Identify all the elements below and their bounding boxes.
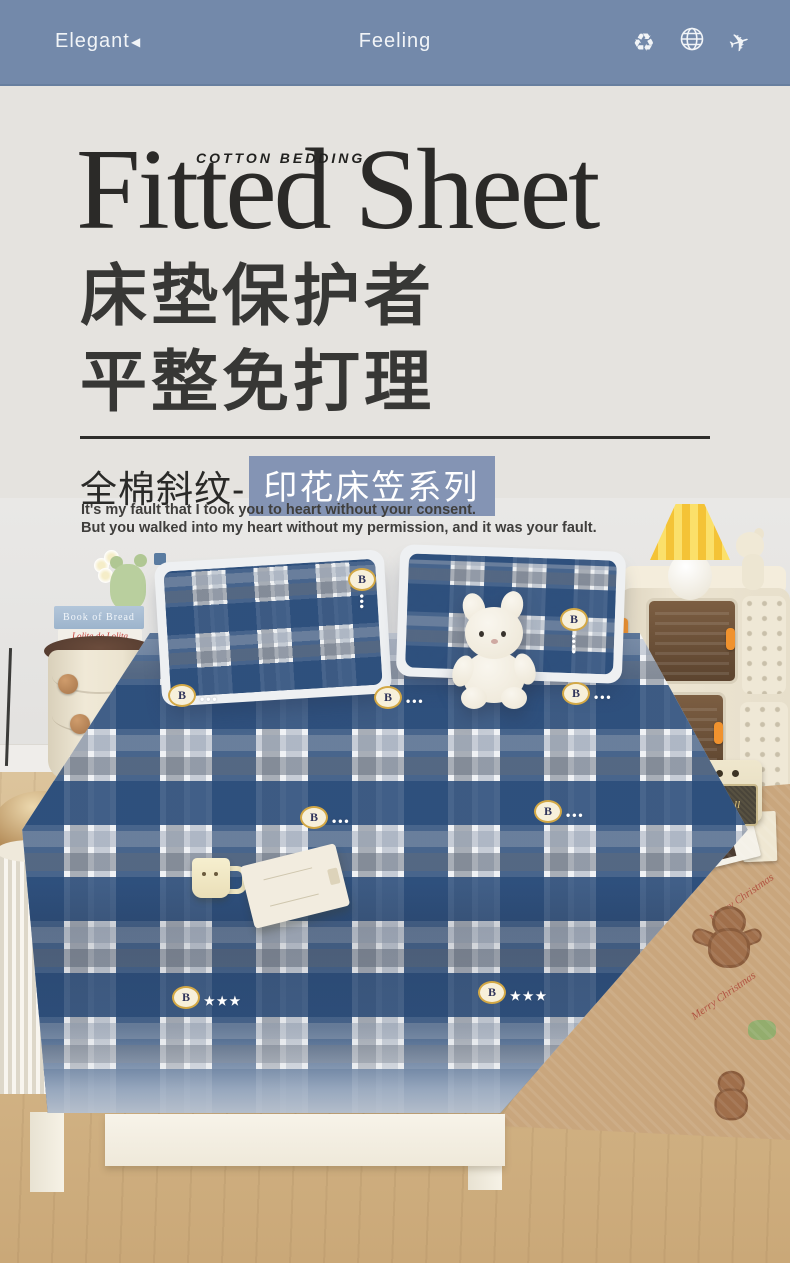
- pleated-lamp: [646, 502, 734, 604]
- airplane-icon: ✈: [725, 25, 754, 60]
- orange-latch: [726, 628, 735, 650]
- header-icons: ♻ ✈: [633, 26, 750, 59]
- recycle-icon: ♻: [633, 28, 655, 58]
- divider-rule: [80, 436, 710, 439]
- bear-vase: [94, 552, 148, 610]
- book-spine: Book of Bread: [54, 606, 144, 629]
- bed-frame: [25, 1106, 525, 1198]
- promo-page: Elegant ◀ Feeling ♻ ✈ COTTON BEDDING Fit…: [0, 0, 790, 1263]
- notebook-lines: [263, 867, 318, 906]
- gingerbread-man: [706, 1071, 741, 1109]
- gingerbread-body: [708, 928, 750, 968]
- drawer-knob: [58, 674, 78, 694]
- rug-text: Merry Christmas: [707, 871, 776, 924]
- top-bar: Elegant ◀ Feeling ♻ ✈: [0, 0, 790, 86]
- tree-motif: [748, 1020, 776, 1040]
- pillow-plaid: [163, 559, 382, 698]
- bunny-leg: [501, 687, 527, 709]
- bed-leg: [30, 1112, 64, 1192]
- pegboard-panel: [742, 596, 786, 694]
- figurine-body: [742, 554, 764, 590]
- mug-body: [192, 858, 230, 898]
- bunny-head: [465, 607, 523, 659]
- tagline-line2: But you walked into my heart without my …: [81, 520, 597, 537]
- eyebrow-label: COTTON BEDDING: [196, 150, 365, 166]
- mug-face: [202, 872, 206, 876]
- cat-figurine: [734, 532, 774, 592]
- pillow-left: [154, 549, 392, 707]
- speaker-knob: [732, 770, 739, 777]
- orange-latch: [714, 722, 723, 744]
- gingerbread-arm: [690, 926, 718, 948]
- headline-line2: 平整免打理: [80, 342, 435, 424]
- hero-title: Fitted Sheet: [76, 131, 597, 249]
- product-photo: Book of Bread Lolita de Lolita: [0, 498, 790, 1263]
- gingerbread-man: [698, 906, 754, 966]
- plush-bunny: [455, 593, 537, 711]
- gingerbread-body: [714, 1088, 748, 1120]
- bunny-nose: [491, 639, 498, 644]
- mug: [190, 850, 242, 900]
- headline-line1: 床垫保护者: [80, 256, 435, 338]
- lamp-shade: [650, 504, 730, 560]
- bunny-eye: [479, 631, 484, 637]
- bed-rail: [105, 1114, 505, 1166]
- gingerbread-head: [718, 1071, 745, 1097]
- rug-text: Merry Christmas: [689, 969, 758, 1022]
- notebook-clasp: [327, 867, 341, 885]
- bunny-leg: [461, 687, 487, 709]
- globe-icon: [679, 26, 705, 59]
- gingerbread-arm: [736, 926, 764, 948]
- bunny-eye: [501, 631, 506, 637]
- tagline-line1: It's my fault that I took you to heart w…: [81, 502, 476, 519]
- gingerbread-head: [712, 906, 746, 938]
- bear-vase-body: [110, 564, 146, 610]
